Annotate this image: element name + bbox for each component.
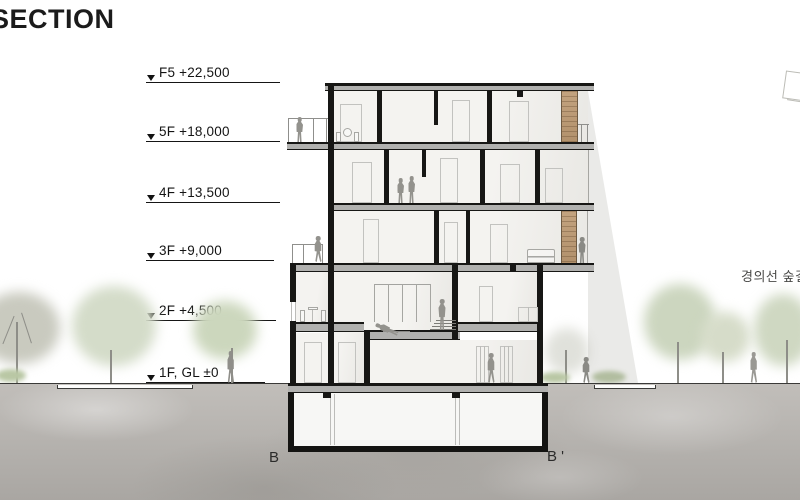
page-icon <box>782 70 800 101</box>
wall-hanging <box>434 91 438 125</box>
tree-trunk <box>722 352 724 383</box>
window-mullion <box>528 307 529 322</box>
sofa-base <box>527 256 555 263</box>
tree-trunk <box>786 340 788 383</box>
door-frame <box>452 100 470 142</box>
wall-1f <box>364 330 370 383</box>
facade-edge <box>587 211 588 263</box>
person-figure <box>407 176 416 203</box>
door-frame <box>444 222 458 263</box>
door-frame <box>545 168 563 203</box>
glass-panel <box>416 284 417 322</box>
tree-trunk <box>677 342 679 383</box>
door-frame <box>479 286 493 322</box>
door-panel-line <box>508 346 509 383</box>
balcony-rail-5f <box>288 118 328 119</box>
person-figure <box>437 299 447 330</box>
roof-slab <box>325 83 594 91</box>
wall-exterior-left <box>290 321 296 383</box>
level-triangle-icon <box>147 75 155 81</box>
wood-wall-5f <box>561 91 578 142</box>
level-marker-f5: F5 +22,500 <box>146 65 280 83</box>
glass-panel <box>430 284 431 322</box>
ground-recess-left <box>57 385 193 390</box>
door-frame <box>440 158 458 203</box>
facade-edge <box>588 150 589 203</box>
wall-partition <box>434 211 439 263</box>
wall-stub <box>452 393 460 398</box>
door-frame <box>500 164 520 203</box>
wood-wall-3f <box>561 211 577 263</box>
level-triangle-icon <box>147 253 155 259</box>
rail-post <box>581 124 582 142</box>
level-label: 1F, GL ±0 <box>159 365 219 380</box>
level-label: 3F +9,000 <box>159 243 222 258</box>
chair <box>300 310 305 322</box>
rail-post <box>313 118 314 142</box>
floor-slab-4f <box>330 203 594 211</box>
table <box>343 128 352 137</box>
person-figure <box>577 237 587 263</box>
shrub <box>0 369 26 382</box>
person-figure <box>295 117 304 142</box>
rail-post <box>587 124 588 142</box>
glass-panel <box>374 284 375 322</box>
level-label: 4F +13,500 <box>159 185 230 200</box>
rail-post <box>288 118 289 142</box>
level-label: 5F +18,000 <box>159 124 230 139</box>
door-panel-line <box>484 346 485 383</box>
tree-foliage <box>72 286 156 366</box>
floor-slab-1f <box>288 383 548 393</box>
door-panel <box>500 346 513 383</box>
wall-core-left <box>328 85 334 384</box>
window-frame <box>295 302 296 321</box>
basement-column <box>334 394 335 445</box>
wall-exterior-left <box>290 265 296 302</box>
basement-column <box>330 394 331 445</box>
ground-recess-right <box>594 385 656 390</box>
door-frame <box>363 219 379 263</box>
rail-post <box>303 244 304 263</box>
wall-partition <box>480 150 485 203</box>
shrub <box>540 372 570 383</box>
site-label-korean: 경의선 숲길 <box>741 266 800 285</box>
glass-panel <box>402 284 403 322</box>
level-marker-3f: 3F +9,000 <box>146 243 274 261</box>
level-marker-1f: 1F, GL ±0 <box>146 365 265 383</box>
door-frame <box>338 342 356 383</box>
door-frame <box>352 162 372 203</box>
wall-partition <box>535 150 540 203</box>
floor-slab-2f-right <box>458 322 538 332</box>
table <box>308 307 318 310</box>
person-figure <box>396 178 405 203</box>
chair <box>336 132 341 142</box>
wall-partition <box>377 91 382 142</box>
level-marker-4f: 4F +13,500 <box>146 185 280 203</box>
door-panel-line <box>480 346 481 383</box>
person-figure <box>581 357 591 383</box>
section-marker-b-prime: B ' <box>547 448 564 465</box>
wall-partition <box>466 211 470 263</box>
door-frame <box>509 101 529 142</box>
level-triangle-icon <box>147 375 155 381</box>
tree-foliage <box>700 312 750 362</box>
chair <box>354 132 359 142</box>
basement-column <box>455 394 456 445</box>
wall-stub <box>510 265 516 272</box>
floor-slab-2f-left <box>290 322 364 332</box>
floor-slab-2f-sunken <box>364 330 460 340</box>
glass-panel <box>388 284 389 322</box>
wall-partition <box>487 91 492 142</box>
basement-column <box>459 394 460 445</box>
table-leg <box>312 310 313 322</box>
level-label: F5 +22,500 <box>159 65 230 80</box>
person-figure <box>486 353 496 383</box>
wall-stub <box>517 91 523 97</box>
door-panel-line <box>504 346 505 383</box>
rail-post <box>292 244 293 263</box>
door-frame <box>304 342 322 383</box>
section-marker-b: B <box>269 449 279 466</box>
wall-exterior-right <box>537 265 543 383</box>
wall-hanging <box>422 150 426 177</box>
person-figure <box>748 352 759 383</box>
basement-box <box>288 393 548 452</box>
wall-partition <box>384 150 389 203</box>
rail-post <box>326 118 327 142</box>
person-figure <box>225 351 236 383</box>
page-title: SECTION <box>0 4 115 35</box>
tree-trunk <box>110 350 112 383</box>
level-marker-5f: 5F +18,000 <box>146 124 280 142</box>
window-frame <box>291 302 292 321</box>
wall-stub <box>323 393 331 398</box>
building-shadow <box>588 91 638 383</box>
person-figure <box>313 236 323 262</box>
level-triangle-icon <box>147 195 155 201</box>
chair <box>321 310 326 322</box>
level-triangle-icon <box>147 134 155 140</box>
section-drawing: SECTION F5 +22,500 5F +18,000 4F +13,500… <box>0 0 800 500</box>
door-frame <box>490 224 508 263</box>
floor-slab-3f <box>290 263 594 272</box>
tree-foliage <box>754 294 800 366</box>
